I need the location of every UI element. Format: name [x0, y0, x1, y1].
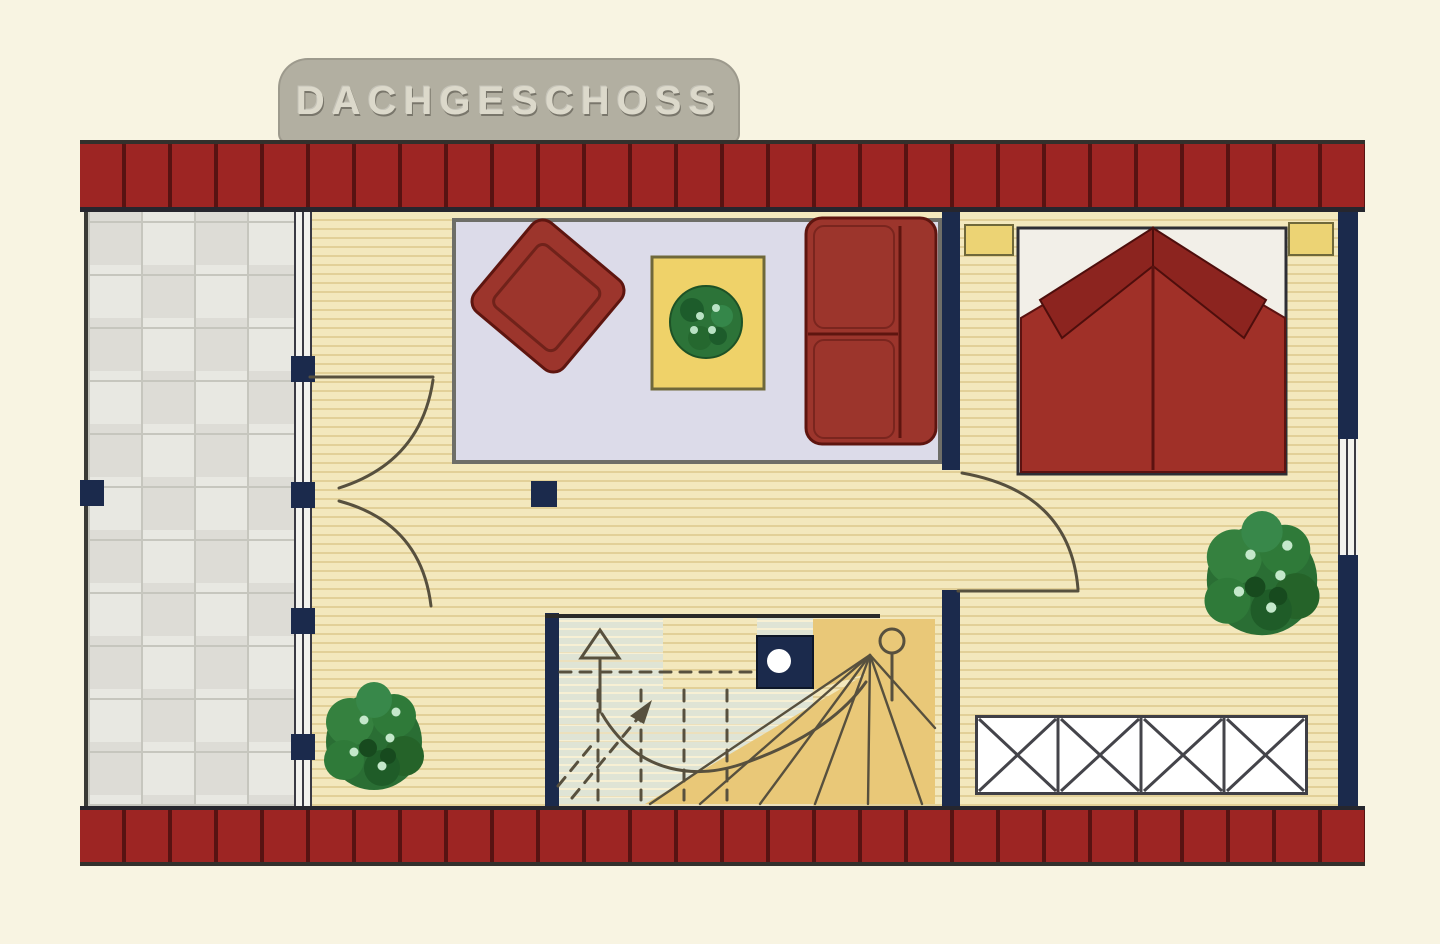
living-area-rug: [452, 218, 942, 464]
floor-title: DACHGESCHOSS: [296, 79, 722, 124]
terrace-wall-post: [80, 480, 104, 506]
top-brick-wall-band: [80, 140, 1365, 212]
bedroom-divider-wall-lower: [942, 590, 960, 806]
bedroom-divider-wall-upper: [942, 212, 960, 470]
glazed-wall-post-1: [291, 356, 315, 382]
bottom-brick-wall-band: [80, 806, 1365, 866]
stair-top-wood-strip: [663, 617, 757, 689]
terrace-stone-floor: [88, 212, 296, 806]
terrace-outer-wall: [84, 212, 88, 806]
glazed-wall-post-3: [291, 608, 315, 634]
right-wall-lower: [1338, 555, 1358, 806]
hall-post: [531, 481, 557, 507]
right-wall-window: [1338, 439, 1358, 555]
right-wall-upper: [1338, 212, 1358, 439]
stair-side-wall: [545, 613, 559, 806]
bedside-table-right: [1288, 222, 1334, 256]
glazed-wall-post-4: [291, 734, 315, 760]
glazed-wall-post-2: [291, 482, 315, 508]
bedside-table-left: [964, 224, 1014, 256]
terrace-glazed-wall: [294, 212, 312, 806]
floor-title-tab: DACHGESCHOSS: [278, 58, 740, 144]
bedroom-shelf: [975, 715, 1308, 795]
